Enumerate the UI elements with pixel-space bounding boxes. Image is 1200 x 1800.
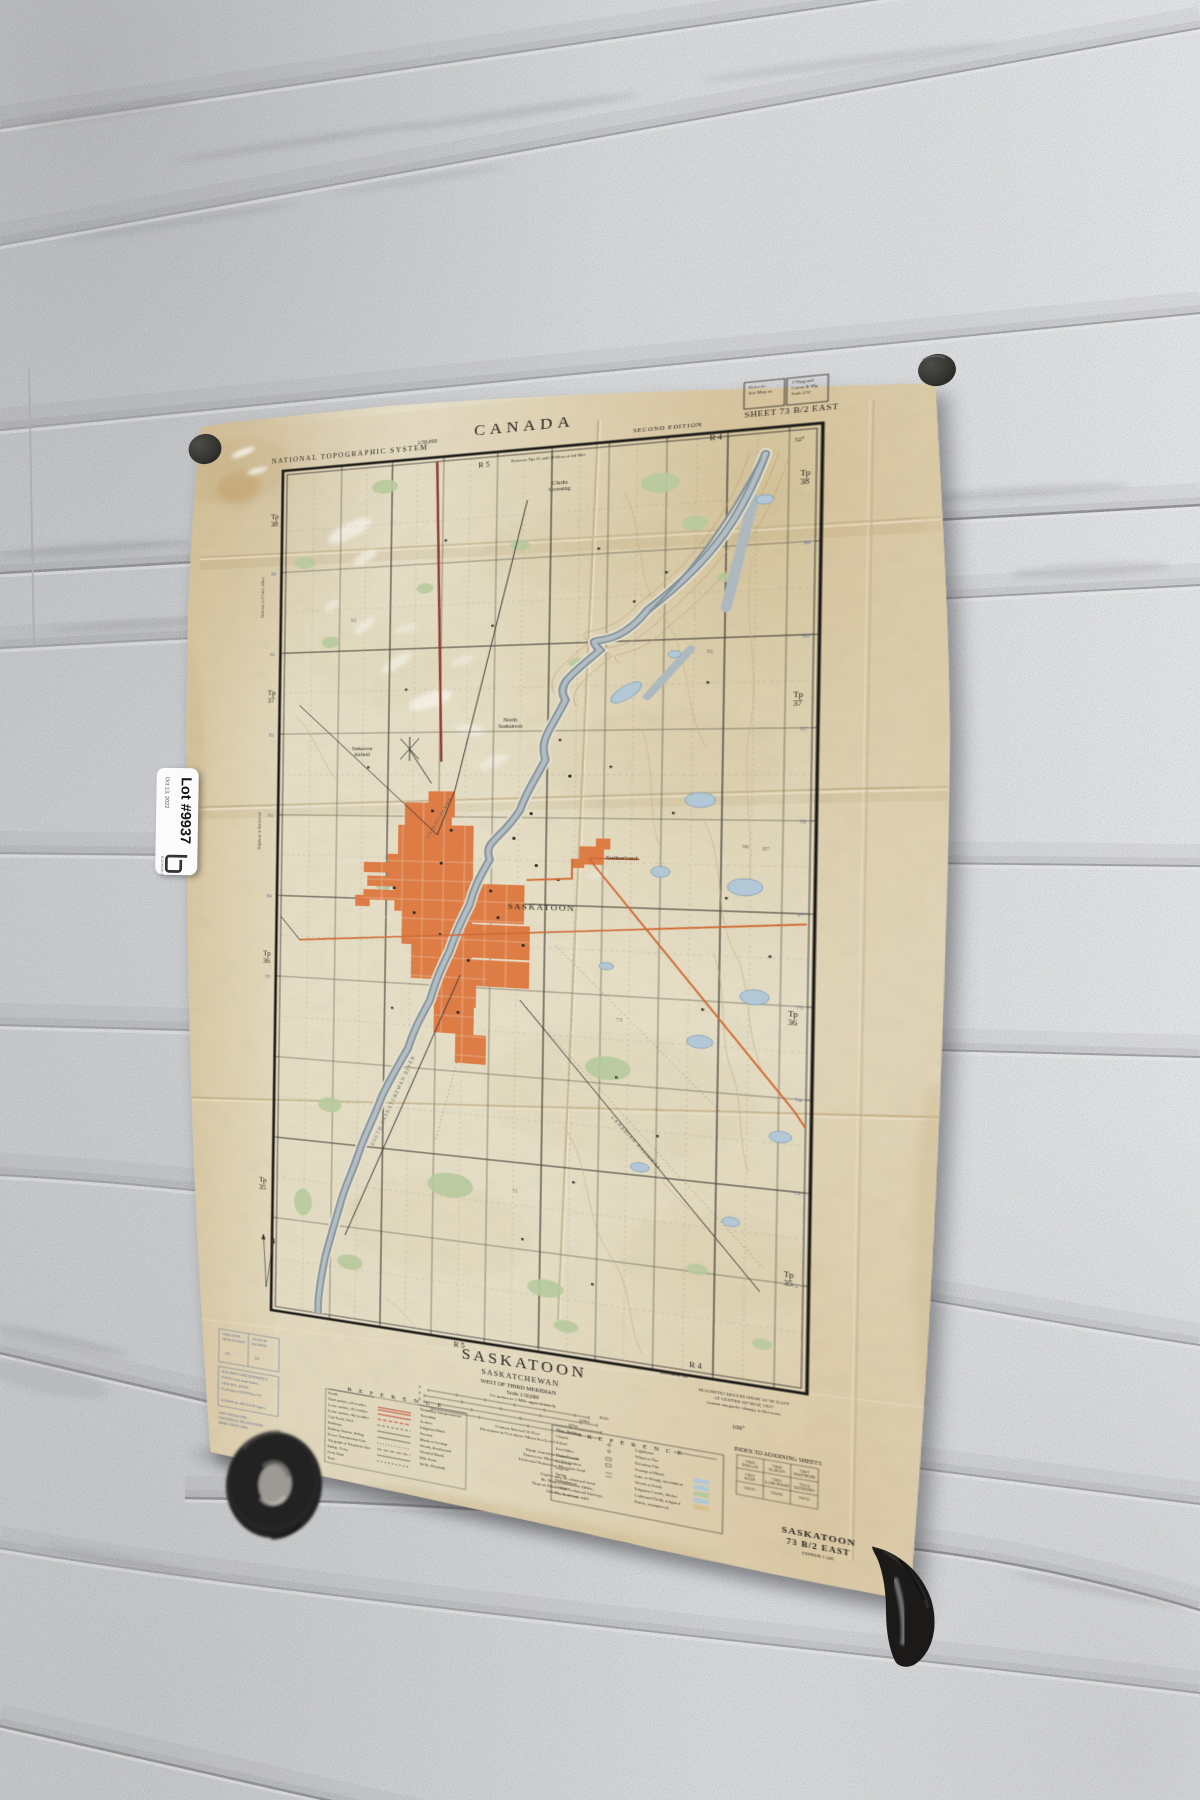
svg-text:Lot #9937: Lot #9937: [177, 777, 194, 844]
svg-text:Oct 13, 2022: Oct 13, 2022: [163, 777, 170, 809]
svg-text:BODNARUS: BODNARUS: [160, 856, 164, 877]
